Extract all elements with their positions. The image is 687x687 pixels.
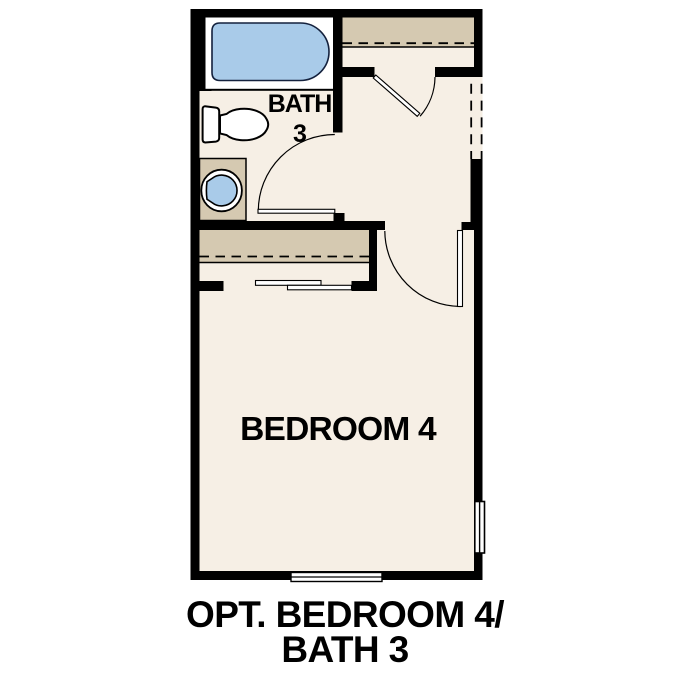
svg-text:BATH: BATH <box>268 90 332 118</box>
svg-text:BATH 3: BATH 3 <box>281 629 408 670</box>
svg-text:3: 3 <box>293 120 307 148</box>
svg-text:BEDROOM 4: BEDROOM 4 <box>240 411 437 448</box>
